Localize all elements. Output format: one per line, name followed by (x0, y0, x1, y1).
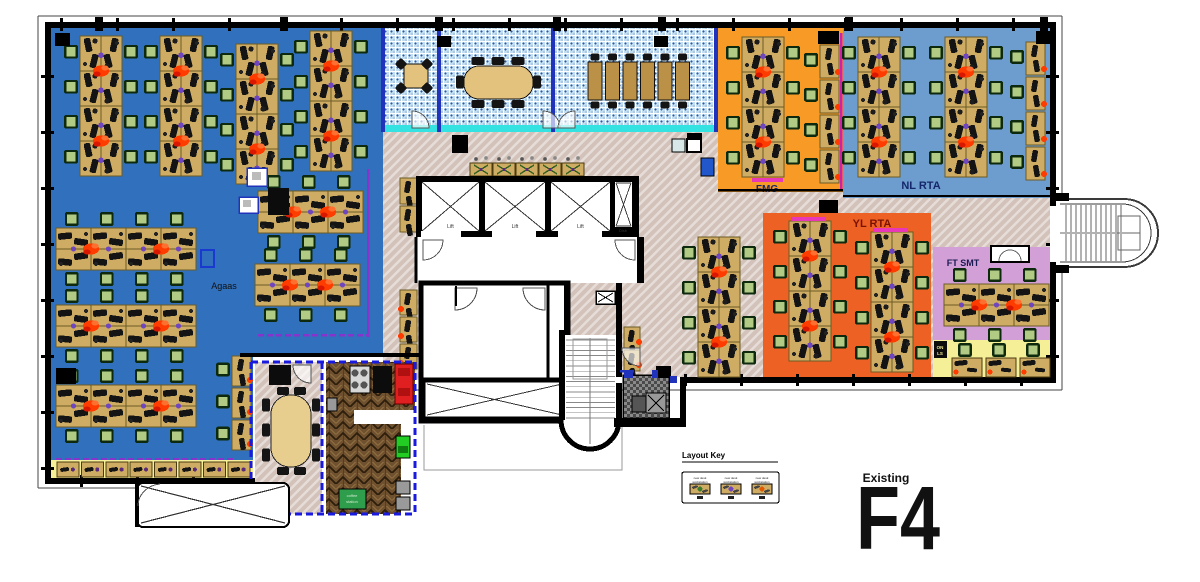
svg-text:NL RTA: NL RTA (901, 180, 940, 192)
svg-text:Lift: Lift (447, 224, 454, 230)
svg-text:workstation: workstation (692, 480, 708, 484)
svg-text:F4: F4 (856, 469, 940, 569)
svg-text:Disb: Disb (619, 228, 628, 233)
svg-text:FT SMT: FT SMT (947, 258, 980, 268)
svg-text:workstation: workstation (723, 480, 739, 484)
svg-text:Lift: Lift (512, 224, 519, 230)
svg-text:LS: LS (937, 351, 943, 356)
svg-text:ON: ON (937, 345, 944, 350)
svg-text:Agaas: Agaas (211, 281, 237, 291)
svg-text:workstation: workstation (754, 480, 770, 484)
svg-text:station: station (346, 499, 358, 504)
svg-text:coffee: coffee (347, 493, 359, 498)
svg-text:YL RTA: YL RTA (853, 218, 892, 230)
svg-text:Layout Key: Layout Key (682, 451, 726, 460)
svg-text:Lift: Lift (577, 224, 584, 230)
